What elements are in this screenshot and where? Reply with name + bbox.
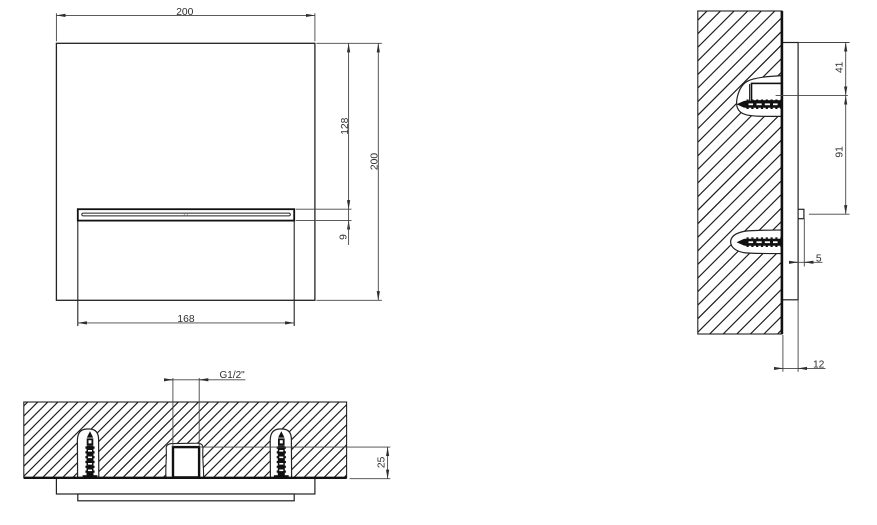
svg-text:5: 5 [816, 254, 822, 265]
svg-text:91: 91 [835, 146, 846, 158]
svg-text:G1/2": G1/2" [220, 370, 246, 381]
svg-text:25: 25 [377, 456, 388, 468]
svg-text:200: 200 [176, 7, 193, 18]
svg-text:168: 168 [177, 314, 194, 325]
svg-text:12: 12 [813, 360, 825, 371]
svg-text:41: 41 [835, 61, 846, 73]
svg-text:200: 200 [370, 153, 381, 170]
svg-text:128: 128 [340, 117, 351, 134]
svg-text:9: 9 [338, 234, 349, 240]
